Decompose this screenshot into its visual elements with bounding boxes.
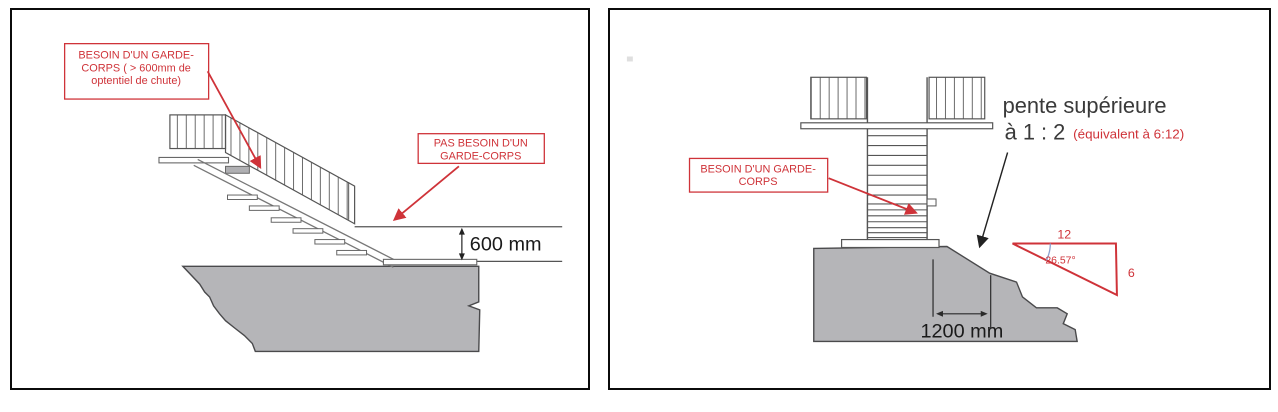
left-diagram-drawing: 600 mm BESOIN D'UN GARDE- CORPS ( > 600m… [12, 10, 588, 388]
callout-line: CORPS [739, 176, 778, 188]
right-diagram-panel: 1200 mm [608, 8, 1271, 390]
dimension-600mm: 600 mm [459, 228, 542, 261]
ladder-latch-tab [927, 199, 936, 206]
faint-mark [627, 57, 633, 62]
tread [249, 206, 279, 210]
top-landing-board [159, 157, 229, 162]
slope-triangle-outline [1013, 244, 1117, 295]
red-leader-arrow [394, 166, 459, 219]
tread [337, 250, 367, 254]
ladder-base-plate [842, 240, 939, 248]
callout-line: BESOIN D'UN GARDE- [78, 50, 194, 62]
callout-line: optentiel de chute) [91, 75, 181, 87]
ground-mass [183, 266, 480, 351]
slope-note-equivalent: (équivalent à 6:12) [1073, 127, 1184, 142]
tread [293, 229, 323, 233]
dim-arrowhead-up [459, 228, 465, 235]
right-diagram-drawing: 1200 mm [610, 10, 1269, 388]
triangle-rise-label: 6 [1128, 266, 1135, 280]
callout-line: CORPS ( > 600mm de [81, 62, 190, 74]
guardrail-panel-right [929, 77, 985, 119]
landing-bar [383, 259, 476, 264]
ladder-lower-section [867, 204, 927, 238]
triangle-angle-label: 26.57° [1045, 255, 1075, 266]
slope-triangle: 12 6 26.57° [1013, 228, 1135, 295]
callout-line: PAS BESOIN D'UN [434, 138, 528, 150]
left-diagram-panel: 600 mm BESOIN D'UN GARDE- CORPS ( > 600m… [10, 8, 590, 390]
slope-note: pente supérieure à 1 : 2 (équivalent à 6… [980, 93, 1184, 247]
ladder-platform-bar [801, 123, 993, 129]
triangle-run-label: 12 [1057, 228, 1071, 242]
gray-tread [226, 166, 250, 173]
slope-note-ratio: à 1 : 2 [1005, 120, 1066, 145]
dimension-600mm-label: 600 mm [470, 233, 542, 255]
callout-line: BESOIN D'UN GARDE- [700, 163, 816, 175]
guardrail-panel-left [811, 77, 867, 119]
ladder-rungs [867, 136, 927, 195]
guardrail-top-section [170, 115, 226, 149]
dimension-1200mm-label: 1200 mm [920, 321, 1003, 343]
slope-note-title: pente supérieure [1003, 93, 1167, 118]
tread [228, 195, 258, 199]
tread [315, 240, 345, 244]
callout-line: GARDE-CORPS [440, 150, 521, 162]
tread [271, 218, 301, 222]
black-leader-arrow [980, 152, 1008, 246]
guardrail-requirements-figure: 600 mm BESOIN D'UN GARDE- CORPS ( > 600m… [0, 0, 1278, 412]
callout-no-guardrail: PAS BESOIN D'UN GARDE-CORPS [394, 134, 544, 220]
